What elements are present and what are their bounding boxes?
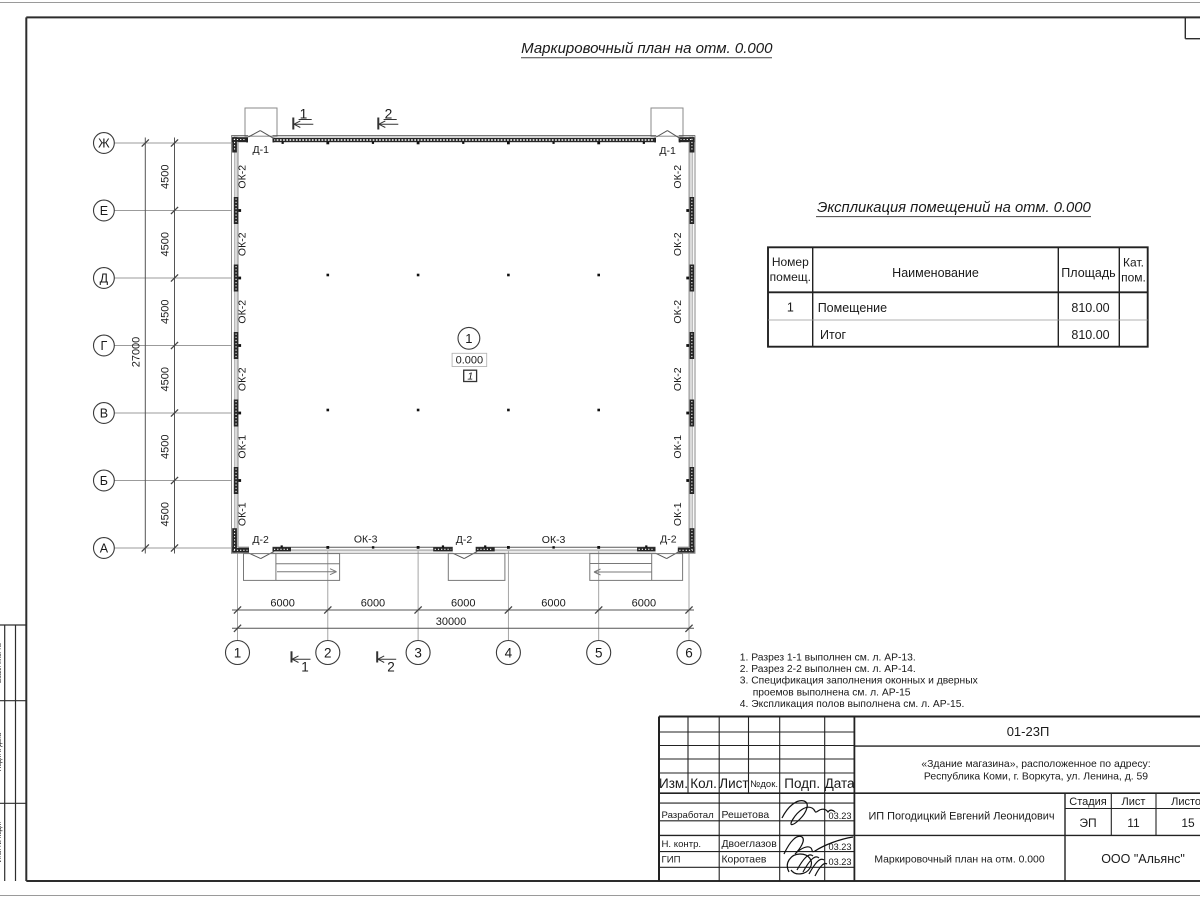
svg-text:ОК-2: ОК-2 [237,165,249,189]
svg-text:Д: Д [100,272,109,286]
svg-text:4500: 4500 [160,165,172,189]
svg-text:ЭП: ЭП [1079,816,1096,830]
svg-text:Дата: Дата [825,776,855,791]
svg-text:Разработал: Разработал [662,810,714,821]
svg-text:1. Разрез 1-1 выполнен см. л.: 1. Разрез 1-1 выполнен см. л. АР-13. [740,653,916,664]
svg-text:4500: 4500 [160,367,172,391]
svg-text:Подп. и дата: Подп. и дата [0,732,3,771]
svg-text:1: 1 [301,660,309,675]
svg-text:27000: 27000 [130,337,142,368]
svg-text:2. Разрез 2-2 выполнен см. л.: 2. Разрез 2-2 выполнен см. л. АР-14. [740,664,916,675]
svg-text:30000: 30000 [436,616,467,628]
svg-text:4: 4 [505,645,513,660]
svg-text:Республика Коми, г. Воркута, у: Республика Коми, г. Воркута, ул. Ленина,… [924,771,1148,783]
svg-text:Д-2: Д-2 [660,534,677,546]
svg-text:Маркировочный план на отм. 0.0: Маркировочный план на отм. 0.000 [521,40,773,57]
svg-text:Д-1: Д-1 [659,145,676,157]
svg-text:Изм.: Изм. [659,776,688,791]
svg-text:ОК-2: ОК-2 [672,367,684,391]
svg-text:15: 15 [1181,816,1195,830]
svg-text:1: 1 [234,645,242,660]
svg-text:810.00: 810.00 [1071,328,1109,342]
svg-text:Стадия: Стадия [1069,796,1107,808]
svg-text:Помещение: Помещение [818,301,887,315]
svg-text:Листов: Листов [1171,796,1200,808]
svg-text:6: 6 [685,645,693,660]
svg-text:6000: 6000 [632,598,656,610]
svg-text:ОК-2: ОК-2 [672,165,684,189]
svg-text:ОК-1: ОК-1 [672,502,684,526]
svg-text:А: А [100,542,109,556]
svg-text:Б: Б [100,474,108,488]
svg-text:ОК-2: ОК-2 [237,367,249,391]
svg-text:4500: 4500 [160,300,172,324]
svg-text:Лист: Лист [1122,796,1146,808]
svg-text:ОК-3: ОК-3 [354,534,378,546]
svg-text:Кат.: Кат. [1123,256,1144,270]
svg-text:1: 1 [465,331,472,346]
svg-text:03.23: 03.23 [829,811,852,821]
svg-text:6000: 6000 [541,598,565,610]
svg-text:1: 1 [467,371,473,383]
svg-text:проемов выполнена см. л. АР-15: проемов выполнена см. л. АР-15 [753,687,911,698]
svg-text:2: 2 [324,645,332,660]
svg-text:2: 2 [387,660,395,675]
svg-text:пом.: пом. [1121,271,1146,285]
svg-text:«Здание магазина», расположенн: «Здание магазина», расположенное по адре… [921,759,1150,770]
svg-text:11: 11 [1127,816,1140,830]
svg-text:Подп.: Подп. [784,776,820,791]
svg-text:6000: 6000 [451,598,475,610]
svg-text:0.000: 0.000 [456,355,484,367]
svg-text:4500: 4500 [160,502,172,526]
svg-text:Решетова: Решетова [722,810,770,821]
svg-text:03.23: 03.23 [829,857,852,867]
svg-text:№док.: №док. [750,779,778,790]
svg-text:Д-2: Д-2 [252,534,269,546]
svg-text:Ж: Ж [98,137,110,151]
svg-text:4. Экспликация полов выполнена: 4. Экспликация полов выполнена см. л. АР… [740,699,965,710]
svg-text:ОК-1: ОК-1 [237,435,249,459]
svg-text:Наименование: Наименование [892,266,979,280]
svg-text:810.00: 810.00 [1071,301,1109,315]
svg-text:Е: Е [100,204,108,218]
svg-text:ОК-2: ОК-2 [672,300,684,324]
svg-text:ОК-2: ОК-2 [237,300,249,324]
svg-text:Д-2: Д-2 [456,534,473,546]
svg-text:Д-1: Д-1 [252,144,269,156]
svg-text:3: 3 [414,645,422,660]
svg-text:Лист: Лист [719,776,748,791]
svg-text:6000: 6000 [270,598,294,610]
svg-text:Площадь: Площадь [1061,266,1115,280]
svg-text:1: 1 [787,301,794,315]
svg-text:01-23П: 01-23П [1007,724,1050,739]
svg-text:Кол.: Кол. [690,776,717,791]
svg-text:ООО "Альянс": ООО "Альянс" [1101,852,1185,866]
svg-text:5: 5 [595,645,603,660]
svg-text:4500: 4500 [160,435,172,459]
svg-text:Итог: Итог [820,328,847,342]
svg-text:Номер: Номер [772,255,809,269]
svg-text:Маркировочный план на отм. 0.0: Маркировочный план на отм. 0.000 [874,855,1044,866]
svg-text:Экспликация помещений на отм.: Экспликация помещений на отм. 0.000 [817,200,1091,216]
svg-text:Инв. № подл.: Инв. № подл. [0,822,3,863]
svg-text:ОК-3: ОК-3 [542,534,566,546]
svg-text:ОК-2: ОК-2 [237,232,249,256]
svg-text:3. Спецификация заполнения око: 3. Спецификация заполнения оконных и две… [740,675,979,687]
svg-text:помещ.: помещ. [770,270,811,284]
svg-text:ОК-1: ОК-1 [237,502,249,526]
svg-text:Н. контр.: Н. контр. [662,839,702,850]
svg-text:4500: 4500 [160,232,172,256]
svg-text:В: В [100,407,108,421]
svg-text:ГИП: ГИП [662,855,681,866]
svg-text:Взам. инв. №: Взам. инв. № [0,643,3,683]
svg-text:Коротаев: Коротаев [722,855,767,866]
svg-text:ОК-1: ОК-1 [672,435,684,459]
svg-text:Двоеглазов: Двоеглазов [722,839,778,850]
svg-text:Г: Г [101,339,108,353]
svg-text:ОК-2: ОК-2 [672,232,684,256]
svg-text:ИП Погодицкий Евгений Леонидов: ИП Погодицкий Евгений Леонидович [868,811,1054,823]
svg-text:6000: 6000 [361,598,385,610]
